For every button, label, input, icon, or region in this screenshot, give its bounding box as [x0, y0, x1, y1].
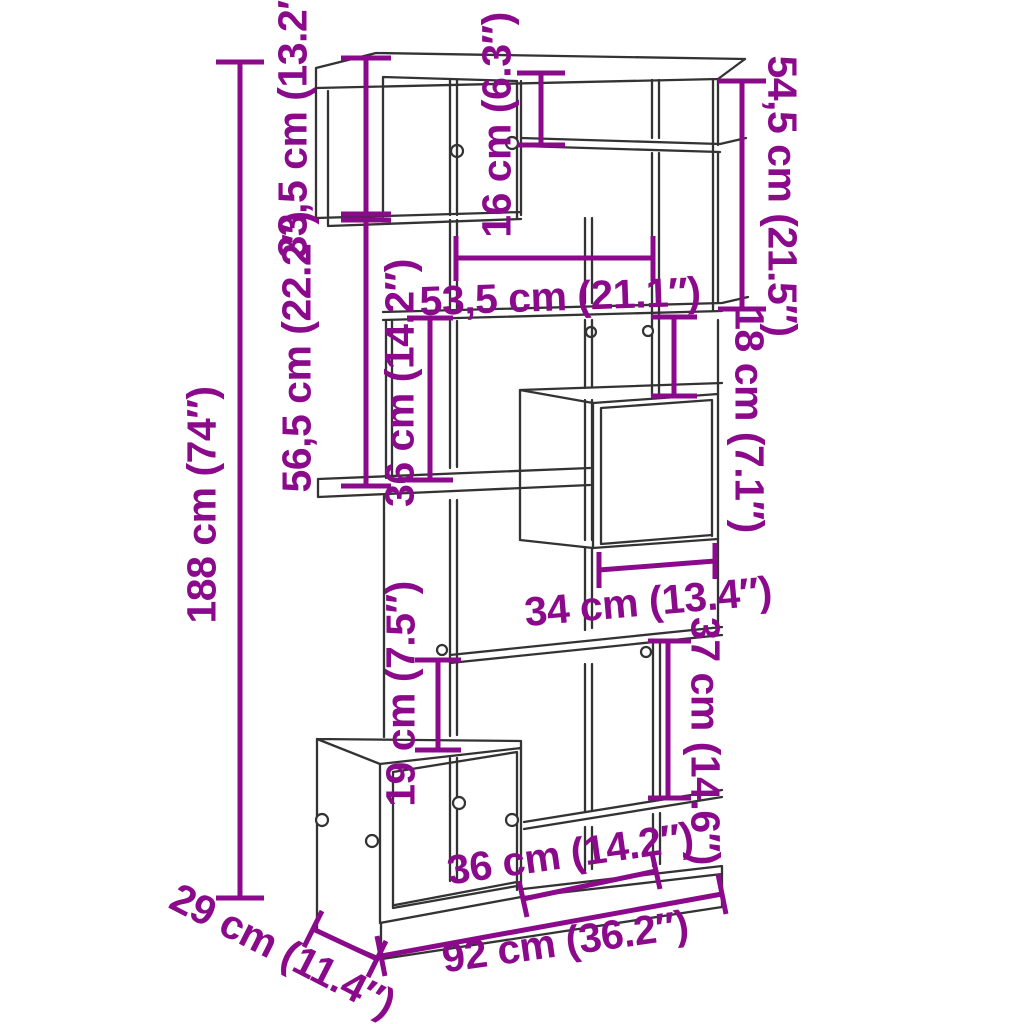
cam-cover-icon	[643, 326, 653, 336]
dimension-label: 54,5 cm (21.5″)	[760, 55, 806, 336]
cam-cover-icon	[641, 647, 651, 657]
product-dimension-diagram: 188 cm (74″) 33,5 cm (13.2″) 16 cm (6.3″…	[0, 0, 1024, 1024]
dimension-label: 56,5 cm (22.2″)	[273, 211, 319, 492]
dimension-label: 18 cm (7.1″)	[727, 307, 773, 533]
dimension-label: 36 cm (14.2″)	[376, 259, 422, 507]
cam-cover-icon	[437, 645, 447, 655]
dimension-label: 19 cm (7.5″)	[377, 581, 423, 807]
cam-cover-icon	[506, 814, 518, 826]
dimension-label: 188 cm (74″)	[178, 387, 224, 624]
diagram-canvas: 188 cm (74″) 33,5 cm (13.2″) 16 cm (6.3″…	[0, 0, 1024, 1024]
cam-cover-icon	[316, 814, 328, 826]
cam-cover-icon	[366, 835, 378, 847]
cam-cover-icon	[453, 797, 465, 809]
dimension-label: 16 cm (6.3″)	[473, 12, 519, 238]
